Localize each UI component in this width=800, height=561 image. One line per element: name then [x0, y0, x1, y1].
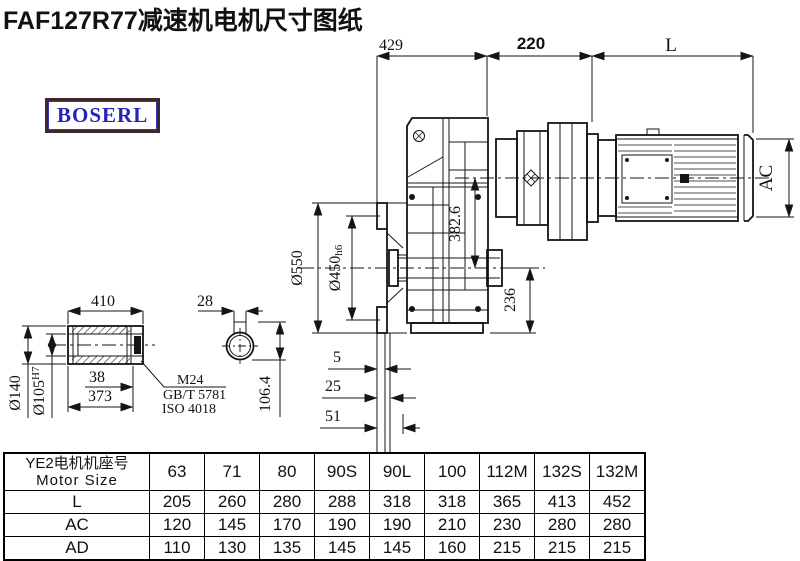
dim-axis-distance: 382.6 [447, 178, 475, 268]
cell: 413 [535, 491, 590, 514]
note-m24: M24 [177, 373, 203, 388]
cell: 130 [205, 537, 260, 561]
cell: 280 [260, 491, 315, 514]
cell: 190 [370, 514, 425, 537]
cell: 318 [370, 491, 425, 514]
table-row-AC: AC 120 145 170 190 190 210 230 280 280 [4, 514, 645, 537]
col-90S: 90S [315, 453, 370, 491]
dim-mounting-offsets: 5 25 51 [320, 349, 420, 434]
cell: 170 [260, 514, 315, 537]
col-71: 71 [205, 453, 260, 491]
col-132M: 132M [590, 453, 646, 491]
page: { "title": "FAF127R77减速机电机尺寸图纸", "logo":… [0, 0, 800, 557]
cell: 318 [425, 491, 480, 514]
cell: 280 [590, 514, 646, 537]
cell: 215 [590, 537, 646, 561]
cell: 210 [425, 514, 480, 537]
col-63: 63 [150, 453, 205, 491]
table-row-AD: AD 110 130 135 145 145 160 215 215 215 [4, 537, 645, 561]
motor-shaft-key-icon [680, 174, 689, 183]
row-label-AD: AD [4, 537, 150, 561]
header-cn: YE2电机机座号 [5, 455, 149, 472]
dim-550-label: Ø550 [289, 250, 306, 286]
cell: 230 [480, 514, 535, 537]
cell: 288 [315, 491, 370, 514]
cell: 452 [590, 491, 646, 514]
cell: 145 [370, 537, 425, 561]
dim-105H7-label: Ø105H7 [30, 366, 48, 416]
cell: 205 [150, 491, 205, 514]
dim-220: 220 [517, 34, 545, 53]
dim-429: 429 [379, 37, 403, 54]
hollow-shaft-detail: 410 Ø140 Ø105H7 38 373 M24 GB/T 5781 ISO… [7, 293, 226, 418]
cell: 260 [205, 491, 260, 514]
motor-size-table: YE2电机机座号 Motor Size 63 71 80 90S 90L 100… [3, 452, 646, 561]
dim-410-label: 410 [91, 293, 115, 310]
dim-51-label: 51 [325, 408, 341, 425]
cell: 215 [480, 537, 535, 561]
col-132S: 132S [535, 453, 590, 491]
dim-140-label: Ø140 [7, 375, 24, 411]
electric-motor [598, 129, 753, 221]
table-header-motor-size: YE2电机机座号 Motor Size [4, 453, 150, 491]
cell: 365 [480, 491, 535, 514]
cell: 145 [315, 537, 370, 561]
table-header-row: YE2电机机座号 Motor Size 63 71 80 90S 90L 100… [4, 453, 645, 491]
dim-236-label: 236 [502, 288, 519, 312]
cell: 280 [535, 514, 590, 537]
dim-450h6-label: Ø450h6 [327, 244, 345, 291]
note-iso4018: ISO 4018 [162, 402, 216, 417]
housing-bottom-cap [411, 323, 483, 333]
dim-373-label: 373 [88, 388, 112, 405]
dim-106-label: 106.4 [257, 376, 274, 412]
dim-motor-height: AC [756, 139, 794, 217]
table-row-L: L 205 260 280 288 318 318 365 413 452 [4, 491, 645, 514]
col-90L: 90L [370, 453, 425, 491]
dim-382-label: 382.6 [447, 206, 464, 242]
dim-38-label: 38 [89, 369, 105, 386]
dim-25-label: 25 [325, 378, 341, 395]
dim-5-label: 5 [333, 349, 341, 366]
dim-L: L [665, 35, 677, 56]
cell: 120 [150, 514, 205, 537]
cell: 190 [315, 514, 370, 537]
motor-stator-window [622, 155, 672, 203]
header-en: Motor Size [5, 472, 149, 489]
retaining-ring [134, 336, 141, 354]
cell: 215 [535, 537, 590, 561]
note-gb5781: GB/T 5781 [163, 388, 226, 403]
col-80: 80 [260, 453, 315, 491]
col-112M: 112M [480, 453, 535, 491]
cell: 145 [205, 514, 260, 537]
motor-adapter [496, 123, 598, 240]
cell: 135 [260, 537, 315, 561]
cell: 110 [150, 537, 205, 561]
row-label-L: L [4, 491, 150, 514]
dim-AC-label: AC [756, 165, 777, 191]
dim-28-label: 28 [197, 293, 213, 310]
row-label-AC: AC [4, 514, 150, 537]
col-100: 100 [425, 453, 480, 491]
adapter-bell [548, 123, 587, 240]
cell: 160 [425, 537, 480, 561]
